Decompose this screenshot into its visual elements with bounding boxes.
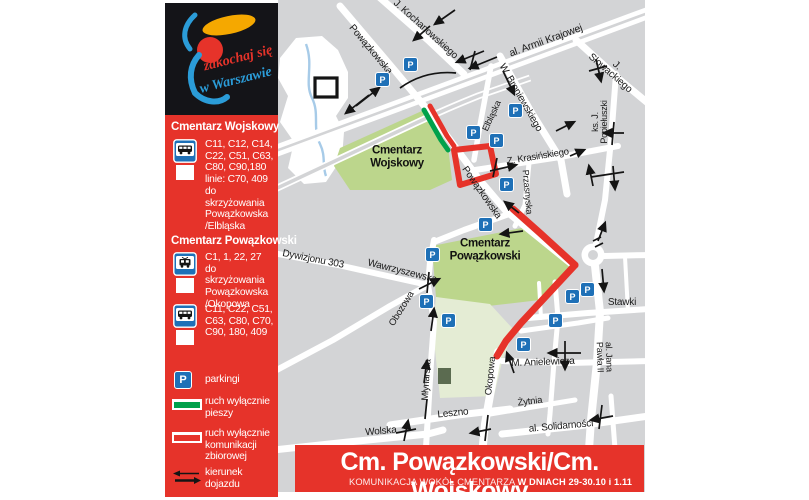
- street-label: Powązkowska: [346, 23, 393, 76]
- red-line-icon: [172, 432, 202, 443]
- cemetery-label: Cmentarz Wojskowy: [370, 144, 424, 169]
- legend-parking-label: parkingi: [205, 374, 239, 386]
- parking-icon: P: [466, 125, 481, 140]
- banner-subtitle: KOMUNIKACJA WOKÓŁ CMENTARZA W DNIACH 29-…: [349, 477, 632, 487]
- section-title-powazkowski: Cmentarz Powązkowski: [171, 235, 297, 247]
- legend-direction-label: kierunek dojazdu: [205, 467, 242, 490]
- street-label: Leszno: [437, 407, 469, 420]
- parking-icon: P: [375, 72, 390, 87]
- parking-icon: P: [508, 103, 523, 118]
- map-labels-layer: PowązkowskaJ. Kochanowskiegoal. Armii Kr…: [278, 0, 645, 492]
- street-label: Z. Krasińskiego: [506, 147, 569, 166]
- street-label: Elbląska: [481, 99, 503, 132]
- parking-sign-icon: P: [174, 371, 192, 389]
- street-label: J. Kochanowskiego: [391, 0, 459, 61]
- bus-stop-sign-icon: [173, 304, 197, 351]
- street-label: Wolska: [365, 426, 397, 439]
- banner-subtitle-bold: W DNIACH 29-30.10 i 1.11: [517, 477, 632, 487]
- street-label: al. Solidarności: [528, 419, 593, 435]
- street-label: Stawki: [608, 298, 636, 308]
- parking-icon: P: [441, 313, 456, 328]
- direction-arrows-icon: [171, 469, 203, 491]
- bus-stop-sign-icon: [173, 139, 197, 186]
- parking-icon: P: [499, 177, 514, 192]
- parking-icon: P: [548, 313, 563, 328]
- parking-icon: P: [516, 337, 531, 352]
- zakochaj-sie-w-warszawie-logo: zakochaj się w Warszawie: [165, 3, 278, 115]
- street-label: Wawrzyszewska: [366, 258, 437, 285]
- street-label: W. Broniewskiego: [497, 62, 544, 133]
- wojskowy-bus-lines: C11, C12, C14, C22, C51, C63, C80, C90,1…: [205, 139, 278, 233]
- parking-icon: P: [489, 133, 504, 148]
- banner-title: Cm. Powązkowski/Cm. Wojskowy: [295, 448, 644, 500]
- street-label: J. Słowackiego: [586, 45, 640, 96]
- tram-stop-sign-icon: [173, 252, 197, 299]
- street-label: Obozowa: [388, 290, 417, 328]
- parking-icon: P: [478, 217, 493, 232]
- street-label: Żytnia: [517, 396, 543, 409]
- powazkowski-tram-lines: C1, 1, 22, 27 do skrzyżowania Powązkowsk…: [205, 252, 278, 311]
- legend-pedestrian-label: ruch wyłącznie pieszy: [205, 396, 270, 419]
- parking-icon: P: [565, 289, 580, 304]
- legend-transit-label: ruch wyłącznie komunikacji zbiorowej: [205, 428, 270, 463]
- parking-icon: P: [403, 57, 418, 72]
- poster: PowązkowskaJ. Kochanowskiegoal. Armii Kr…: [0, 0, 809, 500]
- section-title-wojskowy: Cmentarz Wojskowy: [171, 121, 279, 133]
- street-label: Młynarska: [421, 359, 434, 401]
- street-label: al. Jana Pawła II: [594, 336, 614, 378]
- banner-subtitle-regular: KOMUNIKACJA WOKÓŁ CMENTARZA: [349, 477, 517, 487]
- street-label: M. Anielewicza: [511, 357, 575, 369]
- map: PowązkowskaJ. Kochanowskiegoal. Armii Kr…: [278, 0, 645, 492]
- title-banner: Cm. Powązkowski/Cm. Wojskowy KOMUNIKACJA…: [295, 445, 644, 492]
- green-line-icon: [172, 399, 202, 410]
- parking-icon: P: [425, 247, 440, 262]
- street-label: Dywizjonu 303: [281, 249, 344, 271]
- street-label: Powązkowska: [459, 165, 502, 221]
- street-label: Okopowa: [484, 356, 498, 396]
- street-label: Przasnyska: [520, 169, 533, 214]
- powazkowski-bus-lines: C11, C22, C51, C63, C80, C70, C90, 180, …: [205, 304, 273, 339]
- street-label: al. Armii Krajowej: [508, 23, 584, 59]
- street-label: ks. J. Popiełuszki: [591, 100, 609, 143]
- cemetery-label: Cmentarz Powązkowski: [450, 237, 521, 262]
- parking-icon: P: [580, 282, 595, 297]
- parking-icon: P: [419, 294, 434, 309]
- legend-sidebar: Cmentarz Wojskowy C11, C12, C14, C22, C5…: [165, 115, 278, 497]
